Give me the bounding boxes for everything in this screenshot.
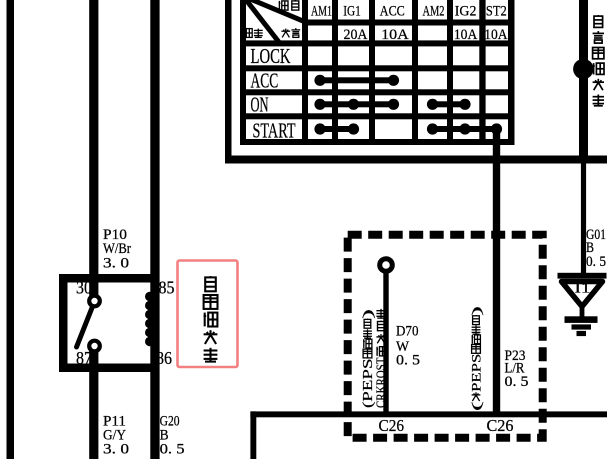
svg-text:ST2: ST2 [486,4,507,20]
svg-text:AM2: AM2 [423,4,445,20]
svg-text:C26: C26 [379,416,405,435]
svg-text:I1: I1 [575,281,591,297]
svg-text:ACC: ACC [251,68,279,92]
svg-text:LOCK: LOCK [251,44,291,68]
svg-text:PEPS: PEPS [468,354,483,392]
svg-text:START: START [253,119,296,143]
svg-text:D70: D70 [396,324,419,340]
svg-text:3. 0: 3. 0 [103,256,129,272]
svg-text:): ) [361,308,376,319]
svg-text:10A: 10A [484,27,507,43]
svg-text:ON: ON [251,92,269,116]
svg-text:AM1: AM1 [311,4,332,20]
svg-text:10A: 10A [454,27,478,43]
svg-text:(: ( [468,401,483,411]
svg-text:3. 0: 3. 0 [103,442,129,458]
svg-text:IG1: IG1 [343,4,361,20]
svg-text:85: 85 [159,278,175,298]
svg-text:20A: 20A [344,27,368,43]
svg-text:86: 86 [156,348,172,368]
svg-text:C26: C26 [487,416,514,435]
svg-text:10A: 10A [381,27,409,43]
svg-text:0. 5: 0. 5 [160,442,185,458]
svg-text:IG2: IG2 [455,4,477,20]
svg-text:0. 5: 0. 5 [586,254,606,270]
svg-text:0. 5: 0. 5 [505,374,529,390]
svg-text:): ) [468,306,483,316]
svg-text:30: 30 [76,278,92,298]
svg-text:0. 5: 0. 5 [396,353,420,369]
svg-text:ACC: ACC [380,4,405,20]
